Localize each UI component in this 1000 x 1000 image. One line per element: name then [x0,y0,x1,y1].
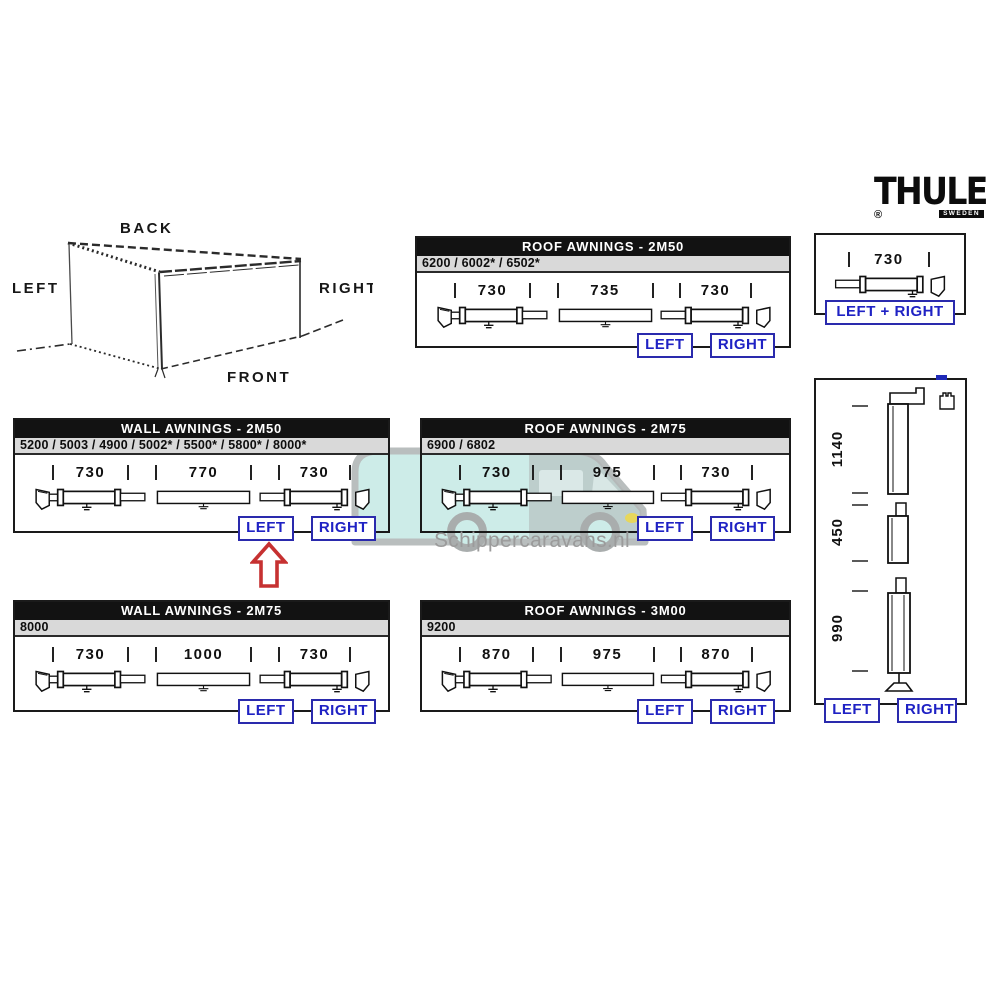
dimension-label: 770 [155,464,252,481]
wall-2m75-right-button[interactable]: RIGHT [311,699,376,725]
dimension-label: 730 [679,282,753,299]
dimension-label: 730 [459,464,534,481]
awning-arm-right: 730 [654,282,777,330]
awning-arm-left-drawing [434,482,560,512]
thule-logo-text: THULE [874,176,987,207]
selection-arrow-icon [250,541,288,589]
legs-left-button[interactable]: LEFT [824,698,880,724]
awning-arm-left: 730 [27,646,154,694]
panel-model-numbers: 8000 [15,620,388,637]
panel-title: WALL AWNINGS - 2M50 [15,420,388,438]
panel-title: ROOF AWNINGS - 2M50 [417,238,789,256]
awning-tube-middle: 1000 [155,646,252,694]
awning-arm-left: 730 [429,282,556,330]
awning-tube-middle: 975 [560,646,656,694]
awning-arm-left: 730 [434,464,560,512]
awning-arm-right: 730 [253,646,376,694]
blue-mark [936,375,947,380]
awning-tube-middle-drawing [560,482,656,512]
roof-2m75-left-button[interactable]: LEFT [637,516,693,542]
awning-arm-left-drawing [434,664,560,694]
spare-arm: 730 [833,251,947,299]
wall-2m75-left-button[interactable]: LEFT [238,699,294,725]
dimension-label: 735 [557,282,654,299]
awning-arm-left: 870 [434,646,560,694]
awning-tube-middle: 735 [557,282,654,330]
panel-wall-awnings-2m75: WALL AWNINGS - 2M75 8000 730 1000 730 LE… [13,600,390,712]
dimension-label: 870 [680,646,753,663]
dimension-label: 975 [560,646,656,663]
vehicle-orientation-sketch: BACK LEFT RIGHT FRONT [8,212,373,407]
panel-roof-awnings-2m50: ROOF AWNINGS - 2M50 6200 / 6002* / 6502*… [415,236,791,348]
awning-arm-right: 870 [655,646,777,694]
legs-right-button[interactable]: RIGHT [897,698,957,724]
dimension-label: 1140 [829,431,846,468]
thule-sweden-tag: SWEDEN [939,210,984,219]
awning-arm-right: 730 [253,464,376,512]
dimension-label: 870 [459,646,534,663]
watermark-text: Schippercaravans.nl [434,529,630,553]
awning-arm-right-drawing [253,664,376,694]
dimension-label: 730 [52,646,128,663]
thule-logo: THULE® SWEDEN [874,176,998,216]
roof-2m50-right-button[interactable]: RIGHT [710,333,775,359]
label-back: BACK [120,220,173,237]
dimension-label: 730 [278,464,352,481]
panel-spare-arm: 730 LEFT + RIGHT [814,233,966,315]
awning-arm-right-drawing [655,664,777,694]
label-front: FRONT [227,369,291,386]
awning-tube-middle-drawing [560,664,656,694]
panel-roof-awnings-2m75: ROOF AWNINGS - 2M75 6900 / 6802 730 975 … [420,418,791,533]
spare-left-plus-right-button[interactable]: LEFT + RIGHT [825,300,955,326]
dimension-label: 1000 [155,646,252,663]
awning-arm-right-drawing [654,300,777,330]
dimension-label: 730 [454,282,530,299]
dimension-label: 730 [680,464,753,481]
roof-3m00-right-button[interactable]: RIGHT [710,699,775,725]
roof-3m00-left-button[interactable]: LEFT [637,699,693,725]
panel-wall-awnings-2m50: WALL AWNINGS - 2M50 5200 / 5003 / 4900 /… [13,418,390,533]
awning-arm-left-drawing [27,482,154,512]
support-legs-drawing: 1140 450 990 [816,385,965,697]
dimension-label: 990 [829,614,846,642]
awning-arm-right-drawing [253,482,376,512]
awning-tube-middle-drawing [557,300,654,330]
roof-2m50-left-button[interactable]: LEFT [637,333,693,359]
panel-roof-awnings-3m00: ROOF AWNINGS - 3M00 9200 870 975 870 LEF… [420,600,791,712]
panel-model-numbers: 5200 / 5003 / 4900 / 5002* / 5500* / 580… [15,438,388,455]
dimension-label: 730 [52,464,128,481]
panel-title: ROOF AWNINGS - 2M75 [422,420,789,438]
awning-arm-right-drawing [655,482,777,512]
awning-arm-right: 730 [655,464,777,512]
label-left: LEFT [12,280,60,297]
awning-tube-middle: 770 [155,464,252,512]
awning-tube-middle-drawing [155,664,252,694]
label-right: RIGHT [319,280,373,297]
awning-arm-left-drawing [27,664,154,694]
awning-tube-middle: 975 [560,464,656,512]
spare-arm-drawing [833,269,947,299]
dimension-label: 450 [829,518,846,546]
panel-model-numbers: 6900 / 6802 [422,438,789,455]
dimension-label: 975 [560,464,656,481]
dimension-label: 730 [278,646,352,663]
catalog-sheet: BACK LEFT RIGHT FRONT THULE® SWEDEN Schi… [0,0,1000,1000]
wall-2m50-left-button[interactable]: LEFT [238,516,294,542]
panel-model-numbers: 6200 / 6002* / 6502* [417,256,789,273]
panel-model-numbers: 9200 [422,620,789,637]
awning-tube-middle-drawing [155,482,252,512]
panel-support-legs: 1140 450 990 LEFT RIGHT [814,378,967,705]
wall-2m50-right-button[interactable]: RIGHT [311,516,376,542]
awning-arm-left: 730 [27,464,154,512]
panel-title: ROOF AWNINGS - 3M00 [422,602,789,620]
roof-2m75-right-button[interactable]: RIGHT [710,516,775,542]
dimension-label: 730 [848,251,930,268]
awning-arm-left-drawing [429,300,556,330]
panel-title: WALL AWNINGS - 2M75 [15,602,388,620]
